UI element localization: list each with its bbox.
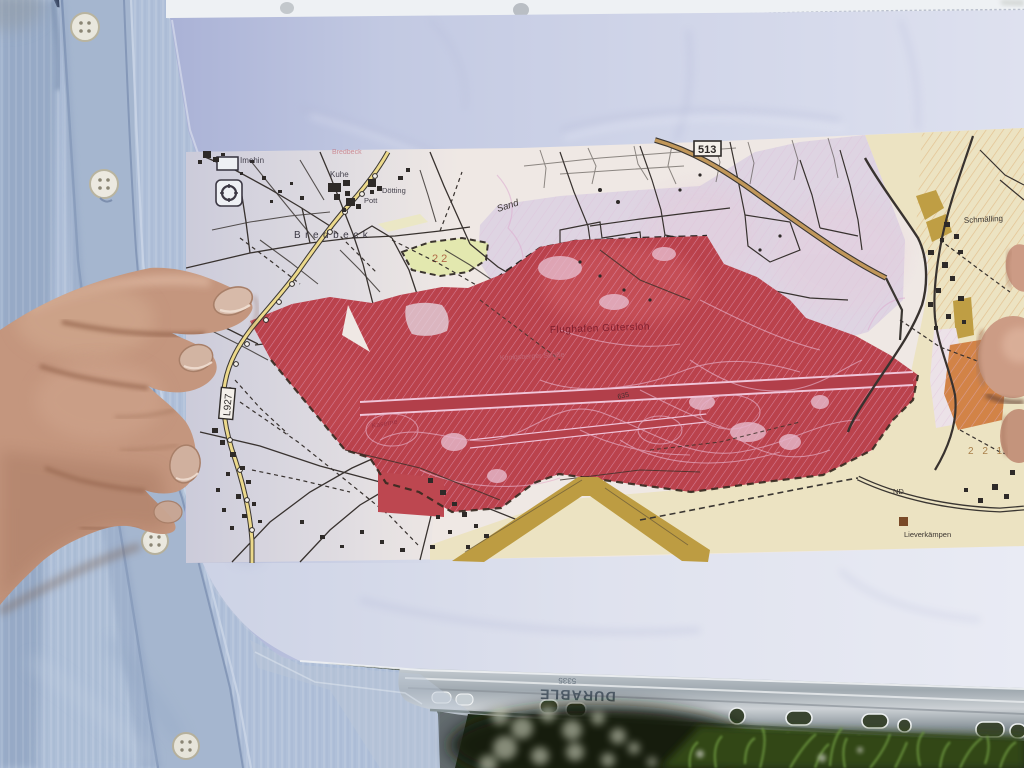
svg-text:Imehin: Imehin [240,156,264,165]
svg-text:2 2: 2 2 [432,253,447,265]
svg-text:Bredbeck: Bredbeck [332,149,362,156]
svg-text:Lieverkämpen: Lieverkämpen [904,530,951,539]
svg-text:Dötting: Dötting [382,186,406,195]
svg-text:Bredbeck: Bredbeck [294,230,372,241]
svg-text:5335: 5335 [558,676,577,686]
svg-text:Kuhe: Kuhe [330,170,349,179]
svg-text:ND: ND [893,487,904,496]
svg-text:L927: L927 [222,393,235,417]
svg-text:513: 513 [698,144,716,156]
svg-text:Pott: Pott [364,196,378,205]
svg-text:2 2 1: 2 2 1 [968,446,1005,457]
svg-text:DURABLE: DURABLE [539,686,616,705]
